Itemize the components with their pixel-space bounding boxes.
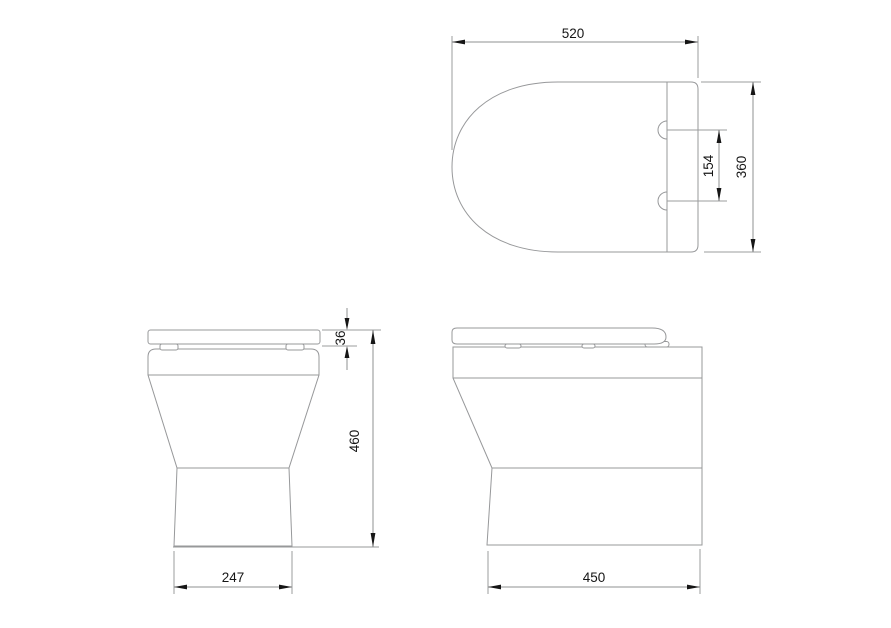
arrow-left (452, 40, 465, 45)
seat-hinge-left (160, 344, 178, 350)
arrow-down (371, 533, 376, 547)
dim-label-520: 520 (562, 26, 585, 41)
arrow-down (717, 188, 722, 201)
arrow-left (174, 585, 187, 590)
technical-drawing-canvas: 520 154 360 (0, 0, 891, 628)
dim-460: 460 (347, 330, 375, 547)
dim-label-450: 450 (583, 570, 606, 585)
bowl-body-side (453, 347, 702, 545)
arrow-down (751, 239, 756, 252)
lid-outline-top (452, 82, 698, 252)
arrow-right (685, 40, 698, 45)
arrow-up (371, 330, 376, 344)
dim-label-247: 247 (222, 570, 245, 585)
top-view: 520 154 360 (452, 26, 761, 252)
arrow-up (717, 130, 722, 143)
side-view: 450 (452, 328, 702, 594)
seat-bumper-front (505, 344, 521, 348)
dim-label-460: 460 (347, 430, 362, 453)
arrow-up (751, 82, 756, 95)
seat-bumper-rear (582, 344, 595, 348)
arrow-left (488, 585, 501, 590)
bowl-body-front (148, 349, 319, 546)
toilet-dimension-drawing: 520 154 360 (0, 0, 891, 628)
dim-450: 450 (488, 549, 700, 594)
lid-front (148, 330, 320, 344)
dim-label-154: 154 (701, 154, 716, 177)
dim-label-360: 360 (734, 156, 749, 179)
front-view: 36 460 247 (148, 308, 381, 594)
dim-label-36: 36 (333, 330, 348, 345)
arrow-right (279, 585, 292, 590)
lid-side (452, 328, 666, 344)
dim-247: 247 (174, 551, 292, 594)
seat-hinge-right (286, 344, 304, 350)
arrow-up (345, 346, 350, 358)
arrow-down (345, 318, 350, 330)
arrow-right (687, 585, 700, 590)
